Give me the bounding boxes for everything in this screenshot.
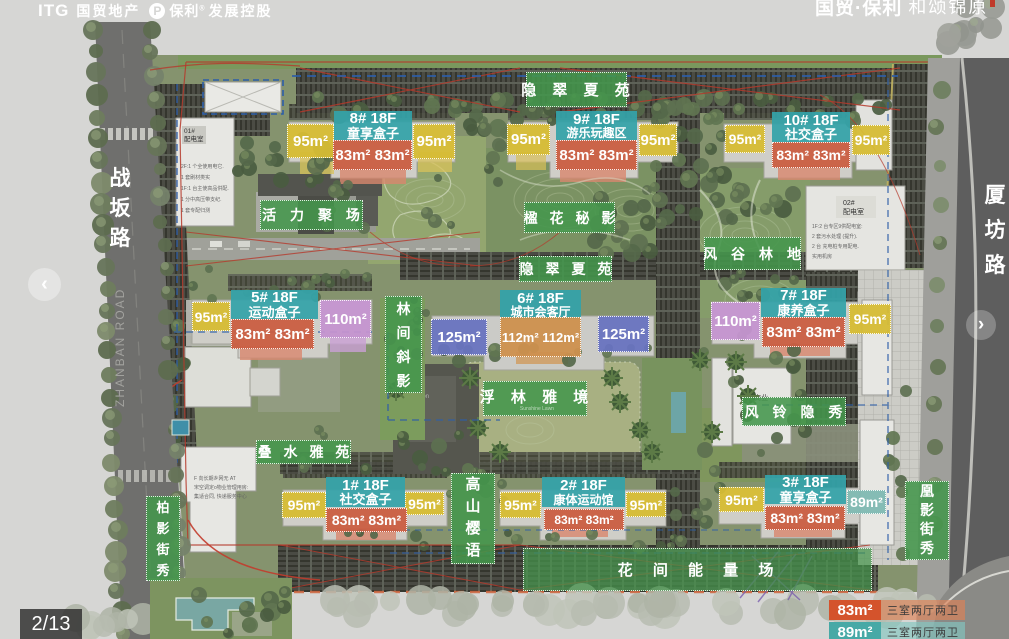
svg-text:1 分中高压带支纪.: 1 分中高压带支纪. xyxy=(181,196,222,203)
svg-text:F 向长期乡网无 AT: F 向长期乡网无 AT xyxy=(194,475,236,482)
svg-text:2 台 充电桩专用配电.: 2 台 充电桩专用配电. xyxy=(812,243,859,250)
svg-text:01#: 01# xyxy=(184,128,195,135)
svg-text:1F:1 台主使高品供配.: 1F:1 台主使高品供配. xyxy=(181,185,229,192)
svg-text:1F:2 台专区9供配电室:: 1F:2 台专区9供配电室: xyxy=(812,223,863,230)
svg-text:1 套专配归测: 1 套专配归测 xyxy=(181,207,210,214)
svg-text:02#: 02# xyxy=(843,200,855,207)
svg-text:配电室: 配电室 xyxy=(843,207,864,216)
svg-text:宋空调定o物业管理用房:: 宋空调定o物业管理用房: xyxy=(194,484,248,491)
svg-text:集适合同, 快递服务中心: 集适合同, 快递服务中心 xyxy=(194,493,247,500)
svg-text:2F:1 个全使用电它.: 2F:1 个全使用电它. xyxy=(181,163,224,170)
svg-text:实用机房: 实用机房 xyxy=(812,253,832,260)
svg-text:2 套污水处理 (提升).: 2 套污水处理 (提升). xyxy=(812,233,857,240)
svg-text:配电室: 配电室 xyxy=(184,134,204,143)
svg-text:1 套刷材类实: 1 套刷材类实 xyxy=(181,174,210,181)
